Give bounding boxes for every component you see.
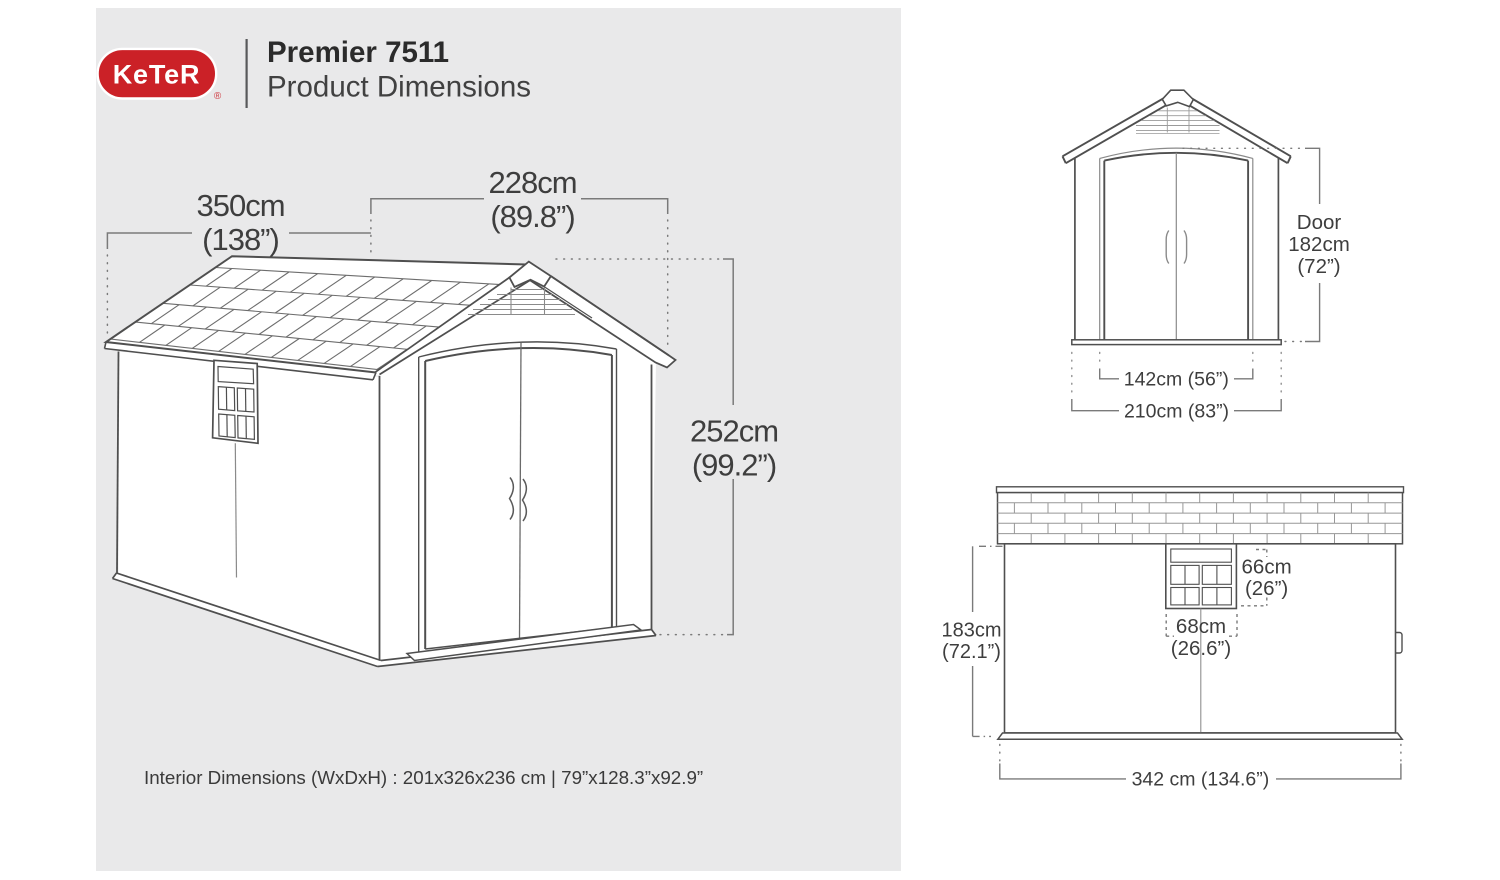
svg-text:350cm: 350cm [196, 188, 284, 223]
svg-text:342 cm (134.6”): 342 cm (134.6”) [1132, 769, 1270, 791]
svg-text:Door: Door [1297, 211, 1342, 234]
svg-text:182cm: 182cm [1288, 233, 1350, 256]
svg-text:(138”): (138”) [202, 222, 279, 257]
svg-text:Interior Dimensions (WxDxH) :: Interior Dimensions (WxDxH) : 201x326x23… [144, 767, 703, 788]
svg-text:(26”): (26”) [1245, 577, 1288, 600]
svg-text:(72.1”): (72.1”) [942, 641, 1001, 663]
svg-text:252cm: 252cm [690, 414, 778, 449]
svg-text:142cm (56”): 142cm (56”) [1124, 369, 1229, 391]
svg-text:183cm: 183cm [941, 620, 1001, 642]
svg-text:®: ® [214, 91, 222, 102]
svg-text:(72”): (72”) [1297, 255, 1340, 278]
svg-text:68cm: 68cm [1176, 615, 1226, 638]
svg-text:210cm (83”): 210cm (83”) [1124, 401, 1229, 423]
svg-text:228cm: 228cm [488, 165, 576, 200]
svg-text:66cm: 66cm [1242, 556, 1292, 579]
svg-text:Product Dimensions: Product Dimensions [267, 71, 531, 104]
svg-text:(89.8”): (89.8”) [490, 199, 574, 234]
svg-text:(99.2”): (99.2”) [692, 448, 776, 483]
svg-text:KeTeR: KeTeR [113, 60, 201, 90]
svg-text:Premier 7511: Premier 7511 [267, 36, 449, 69]
svg-text:(26.6”): (26.6”) [1171, 637, 1231, 660]
